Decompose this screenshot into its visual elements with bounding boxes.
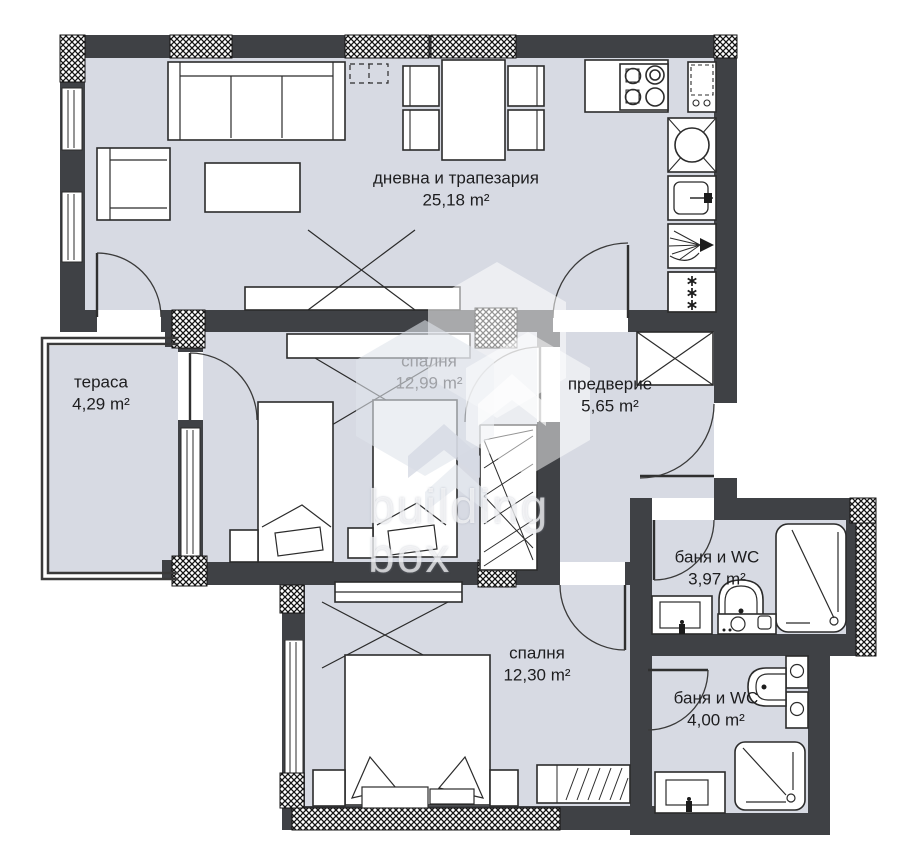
room-label-bath2: баня и WC 4,00 m²: [674, 688, 759, 733]
nightstand-1: [230, 530, 258, 562]
sink-2: [655, 772, 725, 813]
washing-machine: [718, 614, 776, 634]
dining-set: [403, 60, 544, 160]
room-area: 12,99 m²: [395, 373, 462, 395]
room-area: 25,18 m²: [373, 190, 539, 212]
dining-table: [442, 60, 505, 160]
room-name: баня и WC: [674, 688, 759, 710]
watermark-text: building box: [368, 484, 549, 582]
room-label-living: дневна и трапезария 25,18 m²: [373, 168, 539, 213]
kitchen-corner-sink: [668, 118, 716, 172]
room-label-hall: предверие 5,65 m²: [568, 374, 652, 419]
room-area: 4,29 m²: [72, 394, 130, 416]
room-name: тераса: [72, 372, 130, 394]
radiator: [537, 765, 630, 803]
double-bed: [345, 655, 490, 808]
window-living-2: [62, 192, 82, 262]
floor-plan-drawing: [0, 0, 915, 861]
fridge-freezer-symbol: [668, 272, 716, 312]
room-label-bedroom2: спалня 12,30 m²: [503, 643, 570, 688]
room-label-bedroom1: спалня 12,99 m²: [395, 351, 462, 396]
floor-plan: building box дневна и трапезария 25,18 m…: [0, 0, 915, 861]
room-name: дневна и трапезария: [373, 168, 539, 190]
room-area: 12,30 m²: [503, 665, 570, 687]
bed-bench-left: [313, 770, 345, 806]
bathtub: [776, 524, 846, 632]
shower: [735, 742, 805, 810]
sink-1: [652, 596, 712, 634]
room-label-bath1: баня и WC 3,97 m²: [675, 547, 760, 592]
kitchen-appliance: [688, 62, 716, 112]
watermark-line1: building: [368, 484, 549, 533]
cooker-hood: [668, 224, 716, 268]
single-bed-1: [258, 402, 333, 562]
pipe-shaft: [786, 656, 808, 728]
room-name: спалня: [503, 643, 570, 665]
kitchen-counter-stove: [585, 60, 668, 112]
watermark-line2: box: [368, 533, 549, 582]
bed-bench-right: [490, 770, 518, 806]
room-name: баня и WC: [675, 547, 760, 569]
room-area: 5,65 m²: [568, 396, 652, 418]
window-bedroom2: [283, 632, 304, 783]
sofa: [168, 62, 345, 140]
room-name: спалня: [395, 351, 462, 373]
room-area: 3,97 m²: [675, 569, 760, 591]
window-bedroom1: [181, 428, 200, 556]
armchair: [97, 148, 170, 220]
room-area: 4,00 m²: [674, 710, 759, 732]
coffee-table: [205, 163, 300, 212]
kitchen-sink: [668, 176, 716, 220]
window-living-1: [62, 88, 82, 150]
room-name: предверие: [568, 374, 652, 396]
room-label-terrace: тераса 4,29 m²: [72, 372, 130, 417]
